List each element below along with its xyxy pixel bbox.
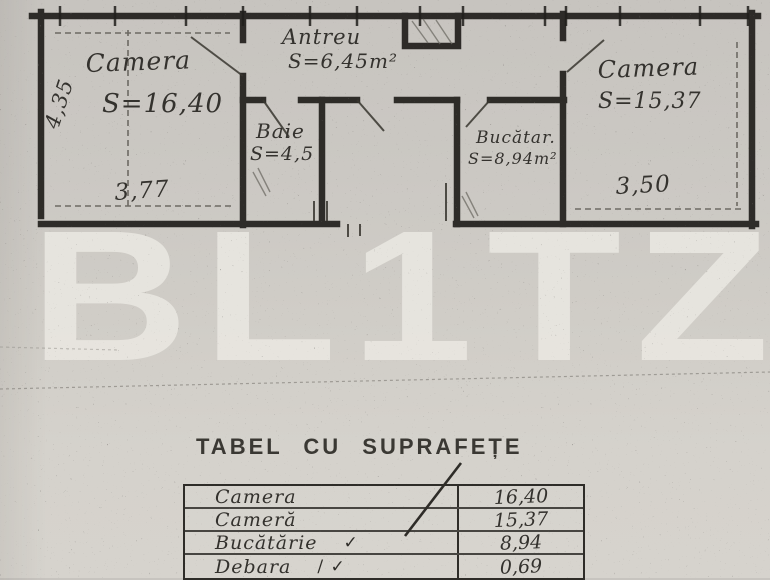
areas-table: Camera 16,40 Cameră 15,37 Bucătărie ✓ 8,… bbox=[183, 484, 585, 580]
blitz-watermark: BL1TZ bbox=[30, 204, 770, 390]
room-area-value: 16,40 bbox=[459, 484, 584, 509]
room-label-antreu-area: S=6,45m² bbox=[288, 49, 398, 73]
scanned-floorplan-page: { "colors": { "ink": "#34322e", "wall": … bbox=[0, 0, 770, 578]
table-row: Cameră 15,37 bbox=[185, 509, 583, 532]
room-name: Cameră bbox=[215, 509, 297, 531]
room-label-baie-area: S=4,5 bbox=[250, 143, 314, 165]
room-name: Bucătărie bbox=[215, 532, 318, 554]
table-row: Camera 16,40 bbox=[185, 486, 583, 509]
room-area-value: 15,37 bbox=[459, 507, 584, 532]
room-label-bucatarie-area: S=8,94m² bbox=[468, 149, 558, 168]
room-label-antreu-name: Antreu bbox=[280, 25, 361, 49]
room-label-bucatarie-name: Bucătar. bbox=[475, 128, 556, 148]
room-label-camera2-name: Camera bbox=[597, 52, 699, 84]
table-title: TABEL CU SUPRAFEȚE bbox=[196, 434, 523, 460]
check-mark: ✓ bbox=[344, 533, 359, 553]
room-area-value: 0,69 bbox=[459, 553, 584, 580]
room-label-camera1-name: Camera bbox=[85, 45, 191, 78]
dim-label-435: 4,35 bbox=[40, 76, 79, 133]
room-label-camera1-area: S=16,40 bbox=[102, 89, 223, 119]
room-area-value: 8,94 bbox=[459, 530, 584, 555]
table-row: Bucătărie ✓ 8,94 bbox=[185, 532, 583, 555]
room-label-camera2-area: S=15,37 bbox=[598, 89, 702, 114]
room-label-baie-name: Baie bbox=[255, 119, 305, 143]
table-row: Debara / ✓ 0,69 bbox=[185, 555, 583, 578]
check-mark: / ✓ bbox=[317, 557, 345, 577]
room-name: Camera bbox=[215, 486, 297, 508]
room-name: Debara bbox=[215, 556, 291, 578]
